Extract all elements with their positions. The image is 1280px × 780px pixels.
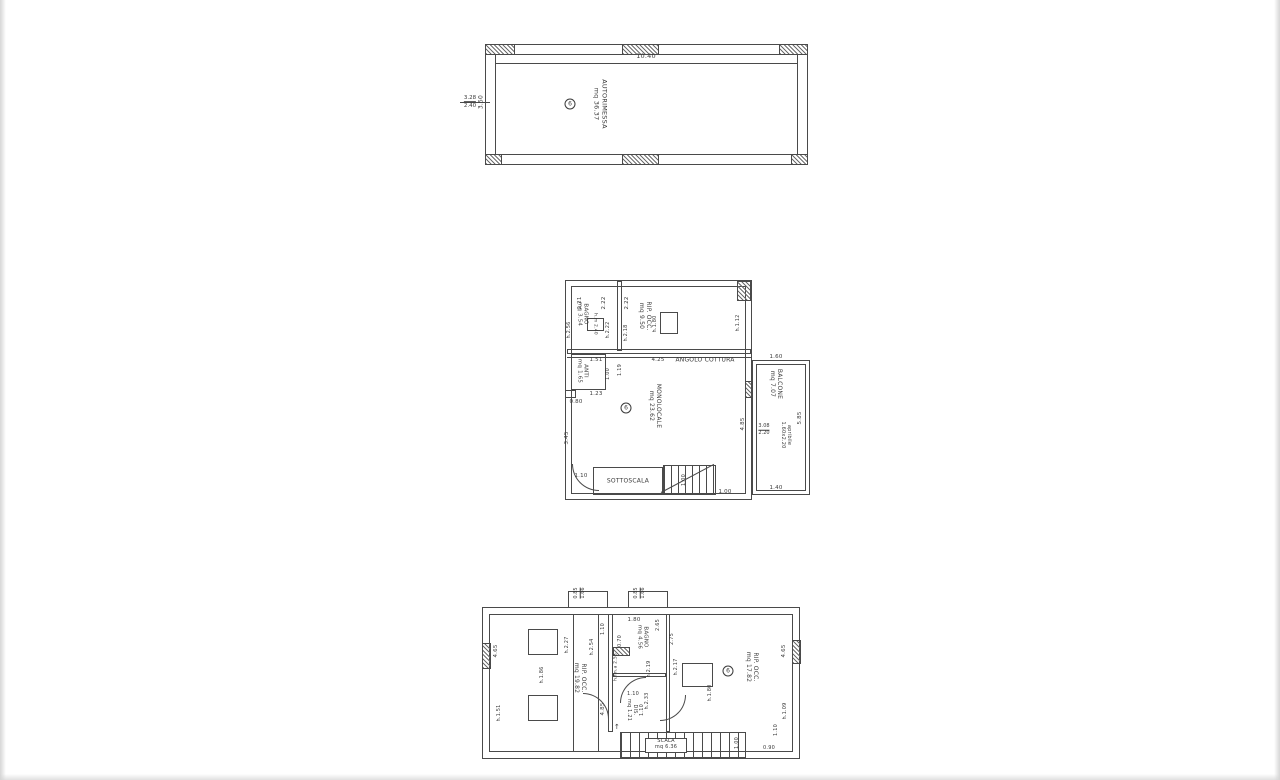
room-label-monolocale: MONOLOCALE mq 23.62	[648, 384, 662, 428]
dim-depth: 3.50	[477, 95, 484, 109]
unit-number: 6	[565, 99, 576, 110]
dim: 4.25	[651, 357, 664, 363]
height-note: h.1.86	[540, 666, 546, 683]
dim: 1.10	[574, 473, 587, 479]
wall-hatch	[792, 640, 801, 664]
height-note: h.2.54	[590, 638, 596, 655]
dim: 1.10	[601, 623, 607, 635]
wall-hatch	[485, 154, 502, 165]
stairs-direction-arrow: ↑	[614, 723, 620, 731]
dim: 1.51	[589, 357, 602, 363]
dim: 1.23	[589, 391, 602, 397]
room-label-scala: SCALA mq 6.36	[655, 739, 677, 751]
room-label-rip-occ-left: RIP. OCC. mq 19.82	[573, 663, 587, 693]
height-note: h.m 2.40	[592, 313, 597, 335]
dim: 1.80	[627, 617, 640, 623]
room-label-sottoscala: SOTTOSCALA	[607, 477, 649, 484]
room-label-rip-occ: RIP. OCC. mq 9.50	[638, 301, 652, 330]
window	[528, 695, 558, 721]
height-note: h.1.12	[736, 314, 742, 331]
stack-bottom: 2.20	[758, 429, 769, 436]
area-label-angolo-cottura: ANGOLO COTTURA	[675, 356, 734, 363]
dim: 4.85	[600, 702, 606, 715]
dim: 0.90	[763, 746, 775, 752]
unit-number: 6	[723, 666, 734, 677]
stack-bottom: 1.66	[579, 587, 586, 598]
dim-line	[496, 63, 797, 64]
room-label-balcone: BALCONE mq 7.07	[769, 369, 783, 399]
height-note: h.2.56	[567, 321, 573, 338]
height-note: h.2.19	[647, 660, 653, 677]
main-floor-plan: 2.212.222.22h.2.56h.2.22h.2.18BAGNO mq 3…	[563, 278, 813, 508]
unit-number: 6	[621, 403, 632, 414]
attic-floor-plan: 0.851.660.851.664.65h.1.51h.2.27h.2.54RI…	[480, 583, 802, 763]
bagno-bottom-wall	[613, 673, 666, 677]
height-note: h.2.17	[674, 658, 680, 675]
dim: 2.22	[624, 296, 630, 309]
room-label-rip-occ-right: RIP. OCC. mq 17.82	[745, 652, 759, 682]
dim: 1.19	[618, 364, 624, 376]
dim: 2.22	[601, 296, 607, 309]
dim: 1.00	[682, 474, 688, 486]
room-label-autorimessa: AUTORIMESSA mq 36.37	[592, 79, 607, 128]
height-note: h.2.22	[606, 321, 612, 338]
wall-hatch	[791, 154, 808, 165]
scan-edge-bottom	[0, 774, 1280, 780]
dim: 3.45	[564, 431, 570, 444]
room-label-dis: DIS. mq 1.21	[625, 699, 637, 721]
height-note: h.1.09	[783, 702, 789, 719]
dim-dormer: 0.851.66	[634, 587, 647, 598]
dim: 4.65	[493, 644, 499, 657]
scan-edge-left	[0, 0, 6, 780]
skylight	[682, 663, 713, 687]
scan-edge-right	[1274, 0, 1280, 780]
ceiling-height-line	[598, 614, 599, 752]
garage-floor-plan: 10.403.282.403.506AUTORIMESSA mq 36.37	[460, 42, 816, 166]
dim: 2.75	[670, 633, 676, 645]
dim: 1.00	[606, 368, 612, 380]
wall-hatch	[737, 281, 751, 301]
wall-hatch	[779, 44, 808, 55]
height-note: h.2.18	[624, 324, 630, 341]
dim: 2.65	[656, 619, 662, 631]
dim: 0.70	[618, 635, 624, 647]
height-note: h.1.80	[708, 684, 714, 701]
dim: 1.00	[735, 737, 741, 749]
dim: 1.10	[627, 692, 639, 698]
room-label-bagno: BAGNO mq 3.54	[576, 302, 589, 326]
dim: 1.10	[774, 724, 780, 736]
stack-bottom: 2.40	[464, 101, 476, 109]
dim-width: 10.40	[636, 53, 656, 61]
room-label-anti: ANTI mq 1.65	[576, 359, 589, 383]
dim-opening: 3.282.40	[464, 95, 476, 109]
scanned-floor-plan-sheet: 10.403.282.403.506AUTORIMESSA mq 36.372.…	[0, 0, 1280, 780]
wall-hatch	[745, 381, 752, 398]
dim-dormer: 0.851.66	[574, 587, 587, 598]
window-note: apribile 1.60x2.20	[779, 421, 791, 448]
height-note: h.fin.a 2.55	[613, 653, 618, 681]
window	[528, 629, 558, 655]
stack-bottom: 1.66	[639, 587, 646, 598]
dim: 1.60	[769, 354, 782, 360]
wall-step	[565, 390, 576, 398]
room-label-bagno: BAGNO mq 4.56	[636, 625, 649, 649]
wall-hatch	[485, 44, 515, 55]
height-note: h.2.27	[565, 636, 571, 653]
window	[660, 312, 678, 334]
dim: 0.80	[569, 399, 582, 405]
dim: 1.00	[718, 489, 731, 495]
dim: 5.85	[797, 411, 803, 424]
dim: 1.10	[640, 704, 646, 716]
garage-inner-wall	[495, 54, 798, 155]
staircase	[663, 465, 716, 495]
dim: 1.40	[769, 485, 782, 491]
partition-wall	[617, 281, 622, 351]
wall-hatch	[482, 643, 491, 669]
height-note: h.1.80	[653, 315, 659, 332]
height-note: h.1.51	[497, 704, 503, 721]
dim-opening: 3.082.20	[758, 424, 769, 437]
dim: 4.65	[781, 644, 787, 657]
wall-hatch	[622, 154, 659, 165]
dim: 4.85	[740, 417, 746, 430]
